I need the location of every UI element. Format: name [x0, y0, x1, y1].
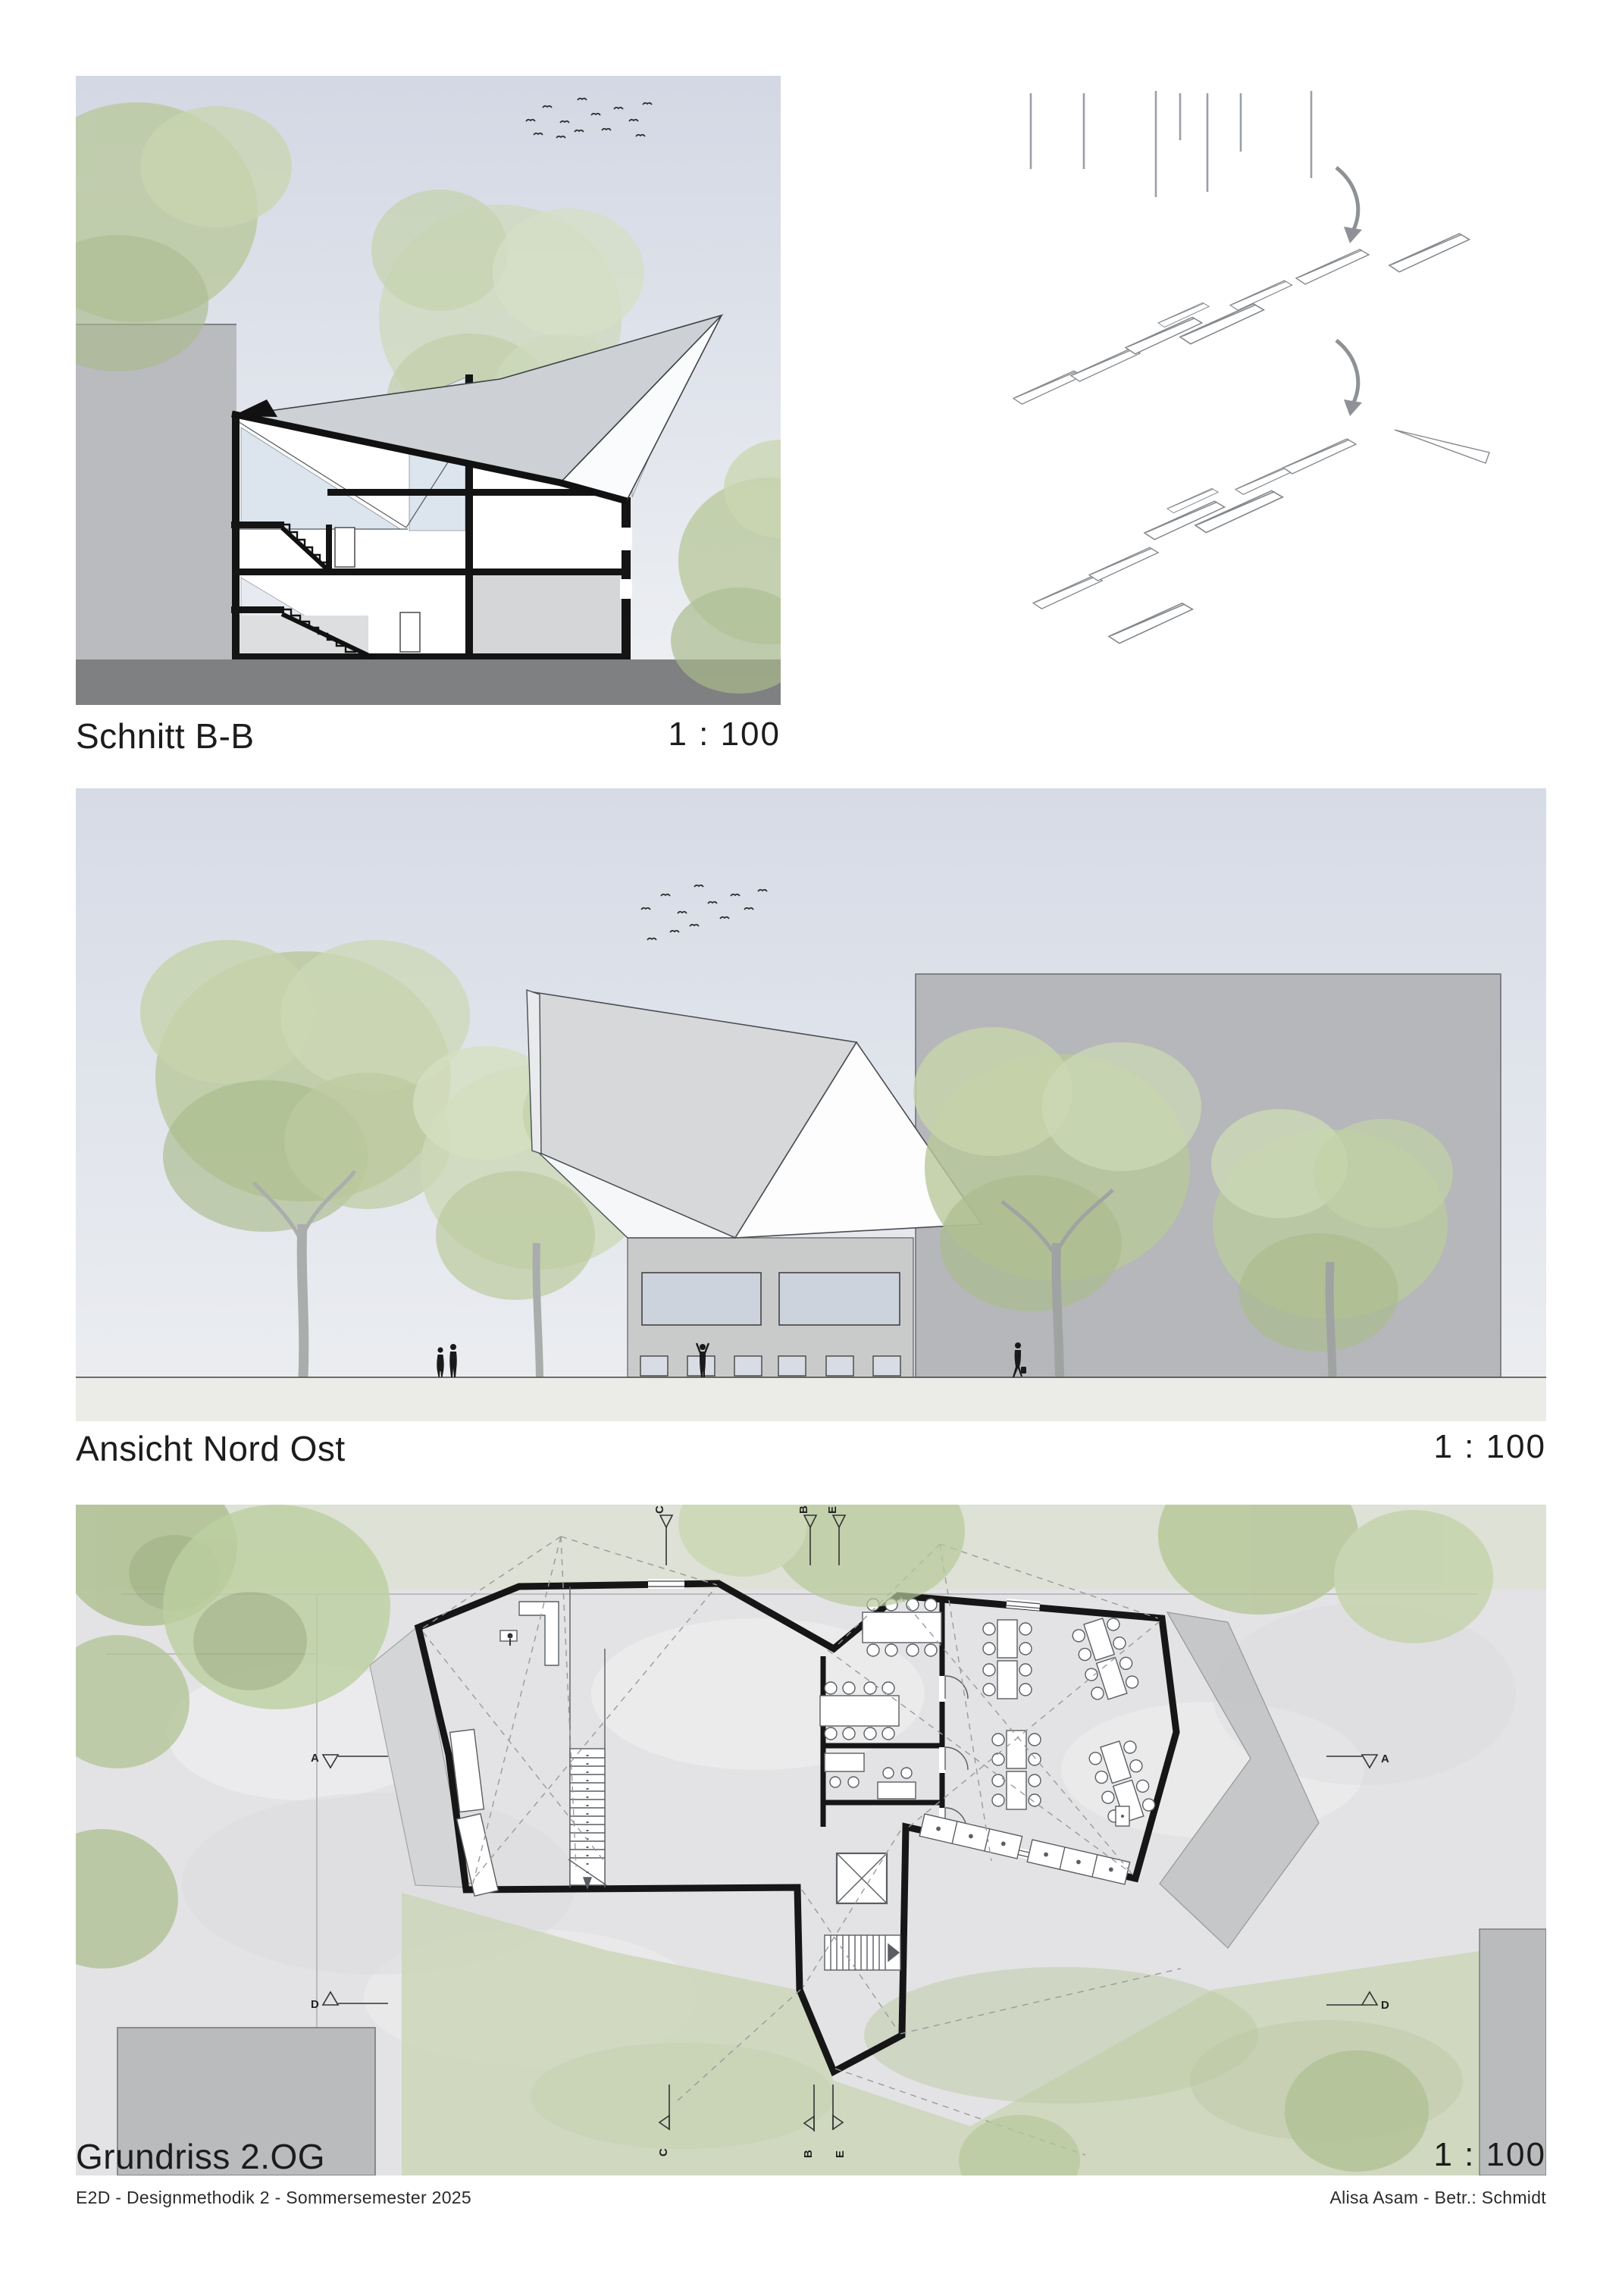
section-caption: Schnitt B-B 1 : 100 — [76, 716, 781, 756]
drawing-title: Ansicht Nord Ost — [76, 1428, 346, 1469]
svg-text:E: E — [826, 1506, 839, 1514]
door-detail — [1116, 1806, 1129, 1826]
elevation-caption: Ansicht Nord Ost 1 : 100 — [76, 1428, 1546, 1469]
window — [779, 1273, 900, 1325]
plan-caption: Grundriss 2.OG 1 : 100 — [76, 2136, 1546, 2177]
ground — [76, 659, 781, 705]
drawing-scale: 1 : 100 — [1433, 2136, 1546, 2174]
elevation-drawing-panel — [76, 788, 1546, 1421]
elevation-drawing — [76, 788, 1546, 1421]
concept-diagram-panel — [974, 80, 1520, 686]
floor-plan-drawing: C B E A A D D C — [76, 1505, 1546, 2175]
concept-diagram — [974, 80, 1520, 686]
author-info: Alisa Asam - Betr.: Schmidt — [1330, 2188, 1546, 2208]
plate-group-middle — [1013, 233, 1470, 404]
pavement — [76, 1378, 1546, 1421]
drawing-title: Schnitt B-B — [76, 716, 255, 756]
staircase — [568, 1749, 606, 1888]
svg-text:D: D — [1381, 1999, 1389, 2012]
svg-text:C: C — [653, 1505, 666, 1514]
presentation-sheet: Schnitt B-B 1 : 100 — [0, 0, 1622, 2296]
drawing-scale: 1 : 100 — [668, 716, 781, 753]
svg-text:D: D — [311, 1998, 319, 2011]
elevator — [837, 1853, 887, 1903]
drawing-title: Grundriss 2.OG — [76, 2136, 325, 2177]
svg-text:A: A — [1381, 1753, 1389, 1765]
curved-arrow-icon — [1336, 340, 1362, 416]
section-drawing-panel — [76, 76, 781, 705]
plate-group-bottom — [1033, 430, 1489, 644]
floor-plan-panel: C B E A A D D C — [76, 1505, 1546, 2175]
neighbour-building — [76, 324, 236, 661]
window — [642, 1273, 761, 1325]
svg-text:B: B — [797, 1505, 810, 1514]
curved-arrow-icon — [1336, 168, 1362, 243]
course-info: E2D - Designmethodik 2 - Sommersemester … — [76, 2188, 471, 2208]
drawing-scale: 1 : 100 — [1433, 1428, 1546, 1466]
sheet-footer: E2D - Designmethodik 2 - Sommersemester … — [76, 2188, 1546, 2208]
svg-text:A: A — [311, 1752, 319, 1765]
section-drawing — [76, 76, 781, 705]
diagram-lines — [1031, 91, 1311, 197]
